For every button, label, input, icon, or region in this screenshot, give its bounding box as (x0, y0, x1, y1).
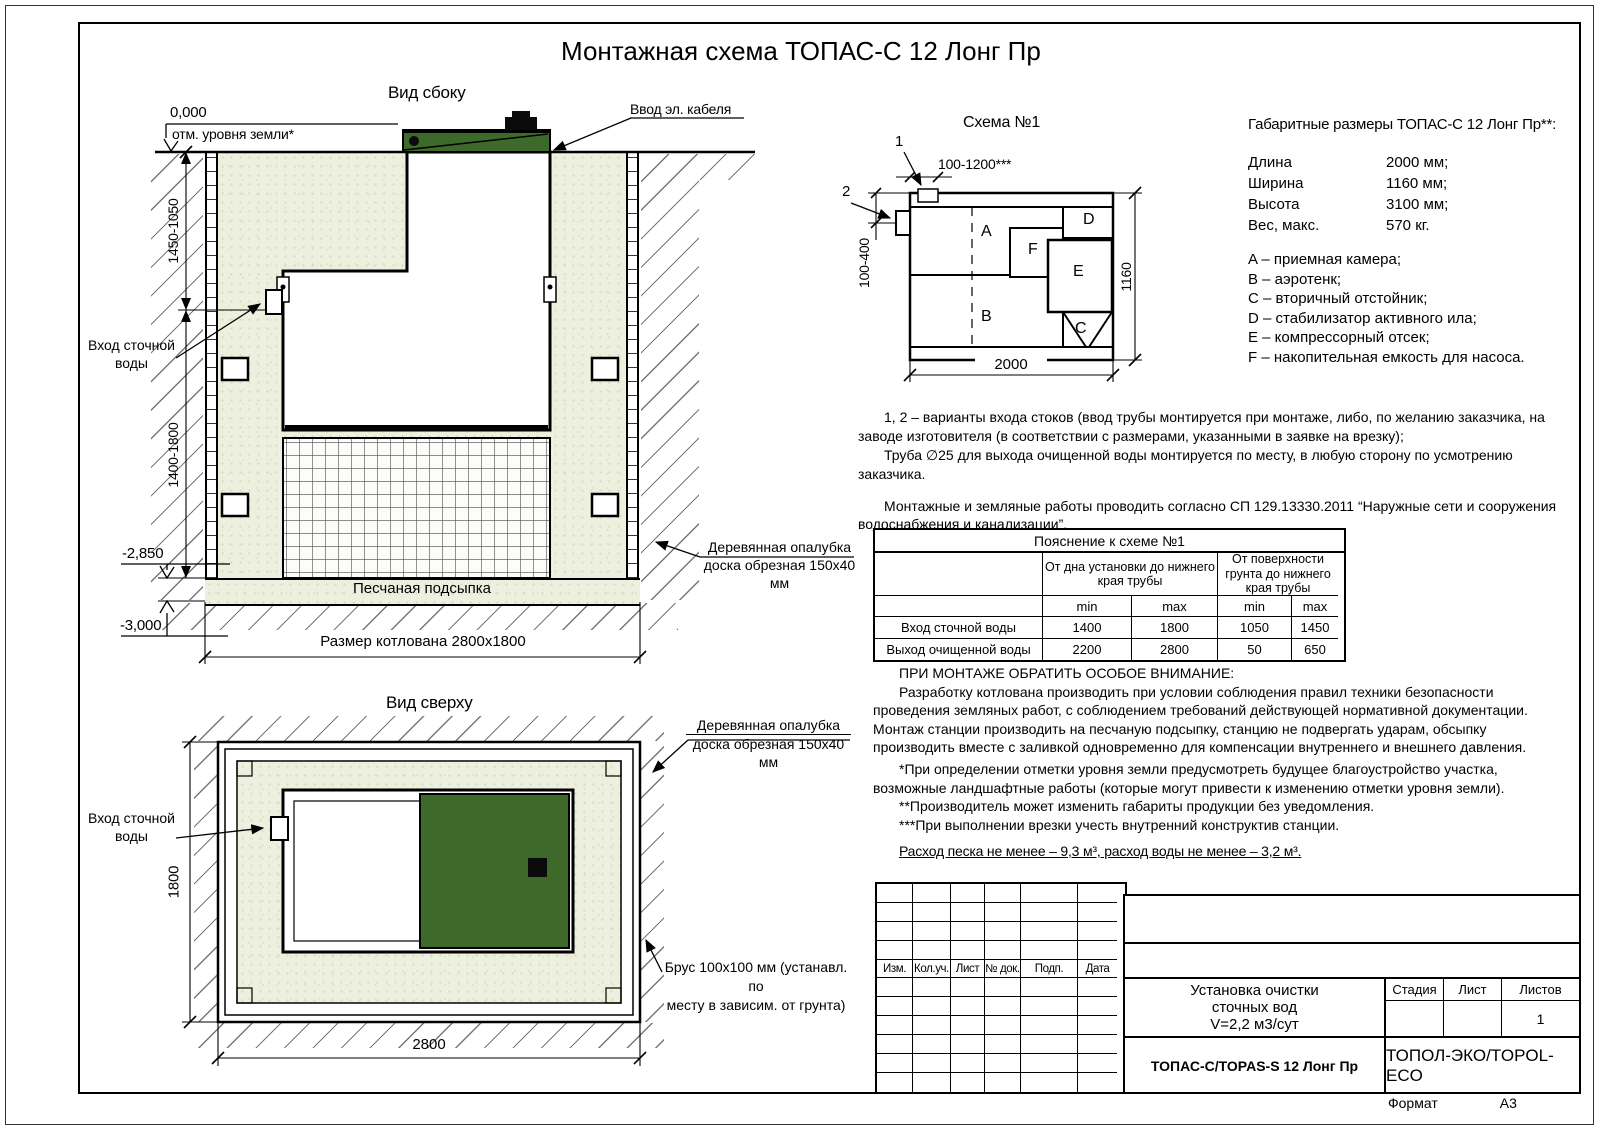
clamp (592, 494, 618, 516)
pit-dim-label: Размер котлована 2800х1800 (258, 633, 588, 650)
side-view-label: Вид сбоку (388, 83, 466, 103)
col-header-surface: От поверхности грунта до нижнего края тр… (1218, 553, 1338, 596)
revision-table: Изм. Кол.уч. Лист № док. Подп. Дата (875, 882, 1127, 1094)
schema-dim-left: 100-400 (856, 238, 872, 288)
drawing-sheet: Монтажная схема ТОПАС-С 12 Лонг Пр Вид с… (0, 0, 1600, 1131)
dim-lower: 1400-1800 (165, 422, 181, 487)
inlet-label-top: Вход сточной воды (84, 810, 179, 845)
schema-1 (851, 152, 1142, 382)
compartment-label-e: E (1073, 263, 1083, 281)
footnote-1: *При определении отметки уровня земли пр… (873, 760, 1565, 797)
sheets-value: 1 (1502, 1001, 1579, 1036)
formwork-label-top: Деревянная опалубка доска обрезная 150х4… (686, 716, 851, 772)
station-grid-section (283, 438, 550, 578)
zero-mark: 0,000 (170, 104, 207, 121)
compartment-label-c: C (1075, 320, 1086, 338)
clamp (592, 358, 618, 380)
station-lid (403, 111, 550, 152)
inlet-label-side: Вход сточной воды (84, 337, 179, 372)
row-outlet: Выход очищенной воды (875, 639, 1043, 660)
rev-col-doc: № док. (985, 960, 1021, 978)
schema-title: Схема №1 (963, 114, 1040, 132)
dim-1800: 1800 (166, 866, 183, 899)
inlet-option-2 (896, 211, 910, 235)
compartment-label-f: F (1028, 241, 1038, 259)
product-title: Установка очистки сточных вод V=2,2 м3/с… (1125, 979, 1386, 1036)
schema-dim-right: 1160 (1118, 262, 1134, 291)
sheet-header: Лист (1444, 979, 1502, 1000)
attention-block: ПРИ МОНТАЖЕ ОБРАТИТЬ ОСОБОЕ ВНИМАНИЕ: Ра… (873, 664, 1565, 757)
inlet-option-1 (918, 189, 938, 202)
lid-vent-cap (505, 117, 537, 130)
explanation-table-title: Пояснение к схеме №1 (875, 530, 1344, 553)
dim-2800: 2800 (379, 1036, 479, 1053)
title-block: Установка очистки сточных вод V=2,2 м3/с… (1123, 894, 1581, 1094)
col-header-bottom: От дна установки до нижнего края трубы (1043, 553, 1218, 596)
station-body (283, 152, 550, 430)
schema-dim-top: 100-1200*** (938, 156, 1011, 172)
specs-title: Габаритные размеры ТОПАС-С 12 Лонг Пр**: (1248, 116, 1556, 133)
schema-marker-2: 2 (842, 183, 850, 200)
inlet-leader-plan (176, 828, 263, 838)
inlet-leader (176, 304, 260, 358)
sheets-header: Листов (1502, 979, 1579, 1000)
lid-hatch-plan (528, 858, 547, 877)
top-view (176, 736, 850, 1066)
formwork-label-side: Деревянная опалубка доска обрезная 150х4… (697, 538, 862, 593)
mark-2850: -2,850 (122, 545, 163, 562)
compartment-label-a: A (981, 223, 991, 241)
attention-body: Разработку котлована производить при усл… (873, 683, 1565, 757)
clamp (222, 494, 248, 516)
model-name: ТОПАС-С/TOPAS-S 12 Лонг Пр (1125, 1038, 1386, 1094)
lid-bolt (409, 136, 419, 146)
company-name: ТОПОЛ-ЭКО/TOPOL-ECO (1386, 1038, 1579, 1094)
schema-marker-1: 1 (895, 133, 903, 150)
footnotes-block: *При определении отметки уровня земли пр… (873, 760, 1565, 834)
top-view-label: Вид сверху (386, 693, 473, 713)
note-pipe: Труба ∅25 для выхода очищенной воды монт… (858, 446, 1564, 484)
page-title: Монтажная схема ТОПАС-С 12 Лонг Пр (561, 36, 1021, 67)
dim-upper: 1450-1050 (165, 198, 181, 263)
mark-3000: -3,000 (120, 617, 161, 634)
specs-table: Длина2000 мм; Ширина1160 мм; Высота3100 … (1248, 152, 1448, 236)
sand-bedding-label: Песчаная подсыпка (297, 580, 547, 597)
format-note: Формат А3 (1388, 1095, 1517, 1111)
beam-label: Брус 100х100 мм (устанавл. по месту в за… (656, 958, 856, 1015)
notes-block: 1, 2 – варианты входа стоков (ввод трубы… (858, 408, 1564, 534)
row-inlet: Вход сточной воды (875, 617, 1043, 639)
cable-leader (554, 118, 744, 150)
format-label: Формат (1388, 1095, 1438, 1111)
compartment-label-d: D (1083, 211, 1094, 229)
rev-col-podp: Подп. (1021, 960, 1078, 978)
inlet-pipe-stub (266, 290, 282, 314)
specs-legend: A – приемная камера; B – аэротенк; C – в… (1248, 250, 1525, 367)
clamp (222, 358, 248, 380)
rev-col-data: Дата (1078, 960, 1117, 978)
rev-col-list: Лист (951, 960, 985, 978)
schema-dim-bottom: 2000 (975, 356, 1047, 373)
inlet-stub-plan (271, 817, 288, 840)
sheet-value (1444, 1001, 1502, 1036)
cable-label: Ввод эл. кабеля (630, 101, 731, 117)
note-variants: 1, 2 – варианты входа стоков (ввод трубы… (858, 408, 1564, 446)
rev-col-kol: Кол.уч. (913, 960, 951, 978)
compartment-label-b: B (981, 308, 991, 326)
attention-title: ПРИ МОНТАЖЕ ОБРАТИТЬ ОСОБОЕ ВНИМАНИЕ: (873, 664, 1565, 683)
consumption-note: Расход песка не менее – 9,3 м³, расход в… (899, 843, 1301, 859)
format-value: А3 (1500, 1095, 1517, 1111)
ground-note: отм. уровня земли* (172, 126, 294, 142)
footnote-3: ***При выполнении врезки учесть внутренн… (873, 816, 1565, 835)
stage-value (1386, 1001, 1444, 1036)
rev-col-izm: Изм. (877, 960, 913, 978)
footnote-2: **Производитель может изменить габариты … (873, 797, 1565, 816)
stage-header: Стадия (1386, 979, 1444, 1000)
explanation-table: Пояснение к схеме №1 От дна установки до… (873, 528, 1346, 662)
